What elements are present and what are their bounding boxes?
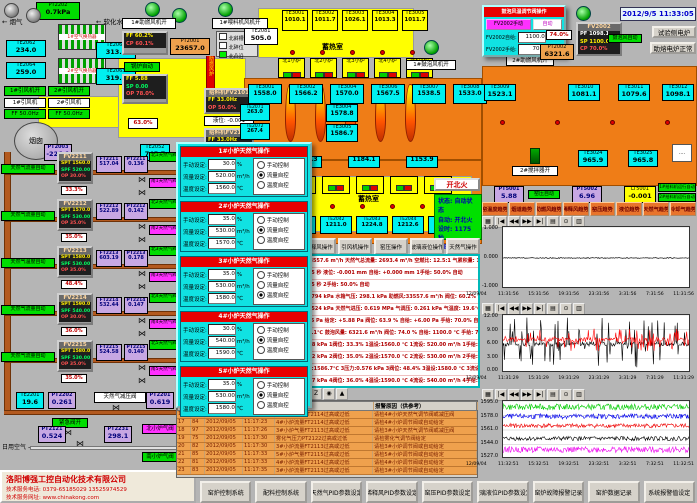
loop-auto-status: 天然气流量自动 [1, 164, 55, 174]
valve-icon: ⋈ [138, 377, 146, 385]
trend-button[interactable]: 窑温度趋势 [482, 202, 508, 216]
valve-dot [380, 50, 385, 55]
x-tick-label: 23:32:51 [589, 462, 610, 467]
mode-flow-radio[interactable]: 流量自控 [257, 391, 303, 399]
south-top-values: 1166.31184.11153.9 [290, 156, 438, 168]
y-tick-label: 1561.0 [460, 426, 498, 432]
bottom-nav-button[interactable]: 窑炉控制系统 [200, 481, 251, 503]
gas-supply-pipe [4, 410, 176, 415]
mode-flow-radio[interactable]: 流量自控 [257, 226, 303, 234]
panel-fields: 手动设定: 35.0 % 流量设定: 530.00 m³/h 温度设定: 158… [183, 378, 250, 415]
bubbler-auto-status: 鼓泡风自动 [608, 34, 642, 43]
mode-flow-radio[interactable]: 流量自控 [257, 336, 303, 344]
south-port-label: 南4小炉 [390, 176, 418, 194]
temp-setpoint-input[interactable]: 1560.0 [208, 183, 236, 194]
control-mode-group: 手动控制 流量自控 温度自控 [253, 323, 305, 360]
blower-1-status: 1#助燃风机开 [122, 18, 176, 29]
fan-icon [145, 2, 160, 17]
south-te-box: TE20421211.0 [320, 216, 352, 234]
north-port-air-valve: 北小炉气阀 [142, 424, 178, 434]
pt2201-box: PT22010.619 [146, 392, 174, 409]
valve-dot [665, 120, 670, 125]
crown-te-stack-2: TE30051586.7 [326, 124, 358, 142]
fv2002-sp-label: FV2002自给: [486, 34, 517, 41]
gas-furnace-panel: 2#小炉天然气操作 手动设定: 35.0 % 流量设定: 530.00 m³/h… [180, 201, 308, 252]
valve-dot [330, 204, 335, 209]
te2081-box: TE2081505.0 [244, 28, 278, 45]
regen-te-box: TE30051011.7 [402, 10, 428, 31]
alarm-row[interactable]: 19752012/09/05 11:17:30雾化气压力PT2122过高或过低请… [177, 435, 477, 443]
mode-manual-radio[interactable]: 手动控制 [257, 216, 303, 224]
bottom-nav-button[interactable]: 玻璃液位PID参数设定 [477, 481, 528, 503]
chimney-label: 烟囱 [29, 136, 43, 146]
trend-button[interactable]: 窑压趋势 [590, 202, 616, 216]
fan-icon [576, 6, 591, 21]
fan-icon [26, 8, 41, 23]
gas-operation-dialog: 1#小炉天然气操作 手动设定: 30.0 % 流量设定: 520.00 m³/h… [176, 142, 312, 408]
feeder-1-auto-status: 1#给料机运行自动 [658, 183, 696, 192]
manual-setpoint-input[interactable]: 30.0 [208, 324, 236, 335]
chart3-yaxis: 1595.01578.01561.01544.01527.0 [460, 399, 498, 459]
south-port-air-valve: 南小炉气阀 [142, 452, 178, 462]
regen-te-box: TE30031026.1 [342, 10, 368, 31]
loop-pressure-box: PT22140.147 [124, 297, 148, 314]
trend-button[interactable]: 烟道趋势 [509, 202, 535, 216]
wall-te-box: TE2072267.4 [240, 123, 270, 140]
chart2-plot [502, 314, 690, 372]
crown-te-stack-1: TE30041578.8 [326, 104, 358, 122]
chart2-yaxis: 12.009.006.003.000.00 [464, 313, 498, 373]
right-te-box-0: TE30091523.1 [484, 84, 516, 101]
x-tick-label: 11:31:29 [673, 376, 694, 381]
stirrer-icon [530, 148, 540, 164]
loop-north-valve: 北1天然气阀 [149, 152, 179, 162]
trend-button[interactable]: 液位趋势 [616, 202, 642, 216]
north-port-label: 北4小炉 [374, 58, 401, 78]
south-port-label: 南2小炉 [322, 176, 350, 194]
chart1-xdate: 12/09/04 [466, 292, 487, 297]
valve-icon: ⋈ [138, 283, 146, 291]
manual-setpoint-input[interactable]: 35.0 [208, 379, 236, 390]
valve-dot [290, 50, 295, 55]
id-fan-2-status: 2#引风机开 [48, 86, 90, 96]
test-furnace-button[interactable]: 试验侧电炉 [652, 26, 696, 38]
panel-title: 1#小炉天然气操作 [181, 147, 307, 157]
south-top-value: 1184.1 [348, 156, 380, 168]
loop-flow-box: FT2213603.19 [96, 250, 122, 267]
panel-title: 4#小炉天然气操作 [181, 312, 307, 322]
y-tick-label: 1.000 [464, 225, 498, 231]
valve-icon: ⋈ [138, 189, 146, 197]
loop-pressure-box: PT22150.140 [124, 344, 148, 361]
temp-setpoint-input[interactable]: 1570.0 [208, 238, 236, 249]
loop-auto-status: 天然气流量自动 [1, 352, 55, 362]
loop-north-valve: 北5天然气阀 [149, 340, 179, 350]
pt2202-box: PT22020.261 [48, 392, 76, 409]
loop-flow-box: FT2212522.89 [96, 203, 122, 220]
gas-loop: 天然气流量自动 FV2211 SPT 1560.0 SPF 520.00 OP … [0, 152, 180, 199]
chart1-xaxis: 11:31:5615:31:5619:31:5623:31:563:31:567… [498, 292, 694, 297]
x-tick-label: 3:32:51 [619, 462, 637, 467]
gas-loop: 天然气流量自动 FV2212 SPT 1570.0 SPF 530.00 OP … [0, 199, 180, 246]
valve-dot [390, 204, 395, 209]
regen-temp-row: TE30011010.1 TE30021011.7 TE30031026.1 T… [282, 10, 428, 31]
loop-pressure-box: PT22130.178 [124, 250, 148, 267]
melt-furnace-button[interactable]: 助熔电炉正常 [650, 42, 696, 54]
valve-dot [500, 120, 505, 125]
fan-icon [4, 3, 19, 18]
loop-north-valve: 北4天然气阀 [149, 293, 179, 303]
loop-pressure-box: PT22120.142 [124, 203, 148, 220]
temp-setpoint-input[interactable]: 1580.0 [208, 293, 236, 304]
panel-title: 3#小炉天然气操作 [181, 257, 307, 267]
crown-te-box: TE30011558.0 [248, 84, 282, 104]
gas-furnace-panel: 3#小炉天然气操作 手动设定: 35.0 % 流量设定: 530.00 m³/h… [180, 256, 308, 307]
loop-valve-position: 48.4% [61, 280, 87, 289]
panel-title: 5#小炉天然气操作 [181, 367, 307, 377]
bubbler-dialog-title: 鼓泡风温调节阀操作 [484, 7, 564, 17]
control-mode-group: 手动控制 流量自控 温度自控 [253, 268, 305, 305]
panel-fields: 手动设定: 30.0 % 流量设定: 520.00 m³/h 温度设定: 156… [183, 158, 250, 195]
trend-button[interactable]: 稀释风趋势 [563, 202, 589, 216]
right-te2-box-0: TE3024965.9 [578, 150, 608, 167]
south-port-label: 南3小炉 [356, 176, 384, 194]
fv2003-controller: FF 5.88 SP 0.00 OP 78.0% [122, 74, 168, 104]
regen-south-label: 蓄热室 [358, 194, 379, 204]
loop-south-valve: 南1天然气阀 [149, 178, 179, 188]
y-tick-label: 3.00 [464, 354, 498, 360]
loop-auto-status: 天然气流量自动 [1, 211, 55, 221]
y-tick-label: 12.00 [464, 313, 498, 319]
fan-icon [218, 2, 233, 17]
mode-flow-radio[interactable]: 流量自控 [257, 171, 303, 179]
crown-te-box: TE30041570.0 [330, 84, 364, 104]
loop-valve-position: 35.0% [61, 233, 87, 242]
bottom-nav-button[interactable]: 天然气PID参数设定 [311, 481, 362, 503]
boiler-auto-status: 锅炉自动 [124, 62, 160, 72]
panel-fields: 手动设定: 30.0 % 流量设定: 540.00 m³/h 温度设定: 159… [183, 323, 250, 360]
temp-setpoint-input[interactable]: 1580.0 [208, 403, 236, 414]
x-tick-label: 19:32:51 [558, 462, 579, 467]
alarm-row[interactable]: 23832012/09/05 11:17:353#小炉流量FT2113过高或过低… [177, 467, 477, 475]
te2201-box: TE220119.6 [16, 392, 44, 409]
trend-button[interactable]: 天然气趋势 [643, 202, 669, 216]
y-tick-label: 6.00 [464, 340, 498, 346]
x-tick-label: 19:31:29 [558, 376, 579, 381]
gas-loop-stack: 天然气流量自动 FV2211 SPT 1560.0 SPF 520.00 OP … [0, 152, 180, 392]
valve-icon: ⋈ [138, 223, 146, 231]
trend-button[interactable]: 冷却气趋势 [670, 202, 696, 216]
loop-north-valve: 北2天然气阀 [149, 199, 179, 209]
loop-auto-status: 天然气温度自动 [1, 258, 55, 268]
scada-screen: 助燃风炉 PT2202 0.7kPa ← 烟气 ← 软化水 1#空气换热器 2#… [0, 0, 697, 503]
alarm-toolbar-icon[interactable]: ◉ [323, 388, 335, 400]
control-mode-group: 手动控制 流量自控 温度自控 [253, 213, 305, 250]
mode-manual-radio[interactable]: 手动控制 [257, 271, 303, 279]
y-tick-label: -1.000 [464, 283, 498, 289]
legend-item: 北凸沿 [219, 51, 255, 60]
valve-icon: ⋈ [76, 440, 84, 448]
manual-setpoint-input[interactable]: 35.0 [208, 214, 236, 225]
valve-icon: ⋈ [138, 176, 146, 184]
y-tick-label: 1578.0 [460, 413, 498, 419]
fire-status-row: 状态: 自动状态 [438, 197, 478, 216]
fire-reversal-button[interactable]: 开北火 [434, 178, 480, 191]
gas-loop: 天然气流量自动 FV2214 SPT 1590.0 SPF 540.00 OP … [0, 293, 180, 340]
flow-setpoint-input[interactable]: 520.00 [208, 171, 236, 182]
y-tick-label: 1544.0 [460, 440, 498, 446]
x-tick-label: 7:31:29 [646, 376, 664, 381]
panel-fields: 手动设定: 35.0 % 流量设定: 530.00 m³/h 温度设定: 157… [183, 213, 250, 250]
valve-icon: ⋈ [138, 330, 146, 338]
alarm-row[interactable]: 21852012/09/05 11:17:335#小炉气量FT2115过高或过低… [177, 451, 477, 459]
ops-button[interactable]: 窑压操作 [374, 238, 408, 255]
gas-dialog-panels: 1#小炉天然气操作 手动设定: 30.0 % 流量设定: 520.00 m³/h… [178, 144, 310, 419]
valve-dot [360, 204, 365, 209]
manual-setpoint-input[interactable]: 35.0 [208, 269, 236, 280]
chart3-plot [502, 400, 690, 458]
duct-label: 助燃风炉 [208, 56, 215, 76]
trend-button[interactable]: 助燃风趋势 [536, 202, 562, 216]
spare-indicator-box: ···· [672, 144, 692, 162]
loop-controller[interactable]: FV2213 SPT 1580.0 SPF 530.00 OP 35.0% [57, 246, 93, 278]
bottom-button-bar: 窑炉控制系统配料控制系统天然气PID参数设定稀释风PID参数设定窑压PID参数设… [200, 481, 695, 503]
mode-flow-radio[interactable]: 流量自控 [257, 281, 303, 289]
alarm-toolbar-icon[interactable]: ▲ [336, 388, 348, 400]
pt2202-top-box: PT2202 0.7kPa [36, 2, 80, 20]
alarm-row[interactable]: 17842012/09/05 11:17:234#小炉流量FT2114过高或过低… [177, 419, 477, 427]
te2062-box: TE2062234.0 [6, 40, 46, 57]
valve-dot [350, 50, 355, 55]
right-te-box-3: TE30121098.1 [662, 84, 694, 101]
gas-furnace-panel: 4#小炉天然气操作 手动设定: 30.0 % 流量设定: 540.00 m³/h… [180, 311, 308, 362]
valve-icon: ⋈ [138, 317, 146, 325]
south-top-value: 1153.9 [406, 156, 438, 168]
x-tick-label: 3:31:56 [619, 292, 637, 297]
x-tick-label: 15:31:56 [528, 292, 549, 297]
id-fan-2-name: 2#引风机 [48, 98, 90, 108]
x-tick-label: 11:31:56 [498, 292, 519, 297]
loop-controller[interactable]: FV2212 SPT 1570.0 SPF 530.00 OP 35.0% [57, 199, 93, 231]
fv2002-sp-input[interactable]: 1100.0 [518, 32, 546, 43]
id-fan-2-freq: FF 50.0Hz [48, 109, 90, 119]
y-tick-label: 0.000 [464, 254, 498, 260]
plant-air-pipe [30, 446, 178, 450]
mode-temp-radio[interactable]: 温度自控 [257, 236, 303, 244]
loop-controller[interactable]: FV2214 SPT 1590.0 SPF 540.00 OP 30.0% [57, 293, 93, 325]
ops-button[interactable]: 玻璃液位操作 [410, 238, 444, 255]
x-tick-label: 15:31:29 [528, 376, 549, 381]
x-tick-label: 3:31:29 [619, 376, 637, 381]
fv2002-manual-button[interactable]: FV2002手动 [486, 19, 531, 30]
id-fan-1-freq: FF 50.0Hz [4, 109, 46, 119]
gas-furnace-panel: 5#小炉天然气操作 手动设定: 35.0 % 流量设定: 530.00 m³/h… [180, 366, 308, 417]
loop-south-valve: 南4天然气阀 [149, 319, 179, 329]
alarm-rows: 16902012/09/05 11:17:214#小炉气量FT2114过高或过低… [177, 411, 477, 475]
bottom-nav-button[interactable]: 稀释风PID参数设定 [366, 481, 417, 503]
loop-south-valve: 南5天然气阀 [149, 366, 179, 376]
y-tick-label: 0.00 [464, 367, 498, 373]
gas-loop: 天然气流量自动 FV2215 SPT 1580.0 SPF 530.00 OP … [0, 340, 180, 387]
north-port-label: 北2小炉 [310, 58, 337, 78]
fv2001-controller: FF 60.2% CP 60.1% [122, 31, 168, 55]
id-fan-1-status: 1#引风机开 [4, 86, 46, 96]
regen-te-box: TE30041013.3 [372, 10, 398, 31]
feeder-2-auto-status: 2#给料机运行自动 [658, 193, 696, 202]
mode-manual-radio[interactable]: 手动控制 [257, 326, 303, 334]
right-te2-box-1: TE3025965.8 [628, 150, 658, 167]
crown-te-box: TE30021566.2 [289, 84, 323, 104]
x-tick-label: 11:32:51 [673, 462, 694, 467]
x-tick-label: 23:31:29 [589, 376, 610, 381]
pt2121-box: PT21210.524 [38, 426, 66, 443]
loop-south-valve: 南2天然气阀 [149, 225, 179, 235]
chart1-plot [502, 226, 690, 288]
x-tick-label: 19:31:56 [558, 292, 579, 297]
chart2-xaxis: 11:31:2915:31:2919:31:2923:31:293:31:297… [498, 376, 694, 381]
south-te-box: TE20441212.6 [392, 216, 424, 234]
bottom-nav-button[interactable]: 窑压PID参数设定 [422, 481, 473, 503]
plant-air-label: 日用空气 → [2, 442, 33, 451]
mode-temp-radio[interactable]: 温度自控 [257, 401, 303, 409]
mode-temp-radio[interactable]: 温度自控 [257, 181, 303, 189]
valve-dot [410, 50, 415, 55]
fv2002-position: 74.0% [546, 30, 572, 40]
valve-icon: ⋈ [112, 404, 120, 412]
mode-manual-radio[interactable]: 手动控制 [257, 161, 303, 169]
x-tick-label: 7:32:51 [646, 462, 664, 467]
mode-temp-radio[interactable]: 温度自控 [257, 346, 303, 354]
right-te-box-1: TE30101081.1 [568, 84, 600, 101]
x-tick-label: 11:31:56 [673, 292, 694, 297]
regen-north-label: 蓄热室 [322, 42, 343, 52]
valve-dot [420, 204, 425, 209]
gas-furnace-panel: 1#小炉天然气操作 手动设定: 30.0 % 流量设定: 520.00 m³/h… [180, 146, 308, 197]
loop-flow-box: FT2214532.44 [96, 297, 122, 314]
loop-valve-position: 35.0% [61, 374, 87, 383]
fan-icon [424, 40, 439, 55]
pt5002-box: PT50026.96 [572, 186, 602, 203]
alarm-row[interactable]: 20822012/09/05 11:17:303#小炉流量FT2113过高或过低… [177, 443, 477, 451]
exchanger-1-label: 1#空气换热器 [59, 34, 105, 40]
trend-button-row: 窑温度趋势烟道趋势助燃风趋势稀释风趋势窑压趋势液位趋势天然气趋势冷却气趋势 [482, 202, 696, 216]
bottom-nav-button[interactable]: 窑炉故障报警记录 [533, 481, 584, 503]
pressure-auto-status: 窑压自动 [528, 190, 560, 199]
valve-icon: ⋈ [138, 270, 146, 278]
te2064-box: TE2064259.0 [6, 62, 46, 79]
gas-loop: 天然气温度自动 FV2213 SPT 1580.0 SPF 530.00 OP … [0, 246, 180, 293]
y-tick-label: 1595.0 [460, 399, 498, 405]
panel-title: 2#小炉天然气操作 [181, 202, 307, 212]
mode-temp-radio[interactable]: 温度自控 [257, 291, 303, 299]
north-port-label: 北1小炉 [278, 58, 305, 78]
company-tel: 技术服务电话: 0379-65185029 13525974529 [6, 485, 190, 493]
company-name: 洛阳博强工控自动化技术有限公司 [6, 474, 190, 485]
bubbler-fan-status: 1#鼓泡风机开 [406, 60, 456, 70]
loop-controller[interactable]: FV2215 SPT 1580.0 SPF 530.00 OP 35.0% [57, 340, 93, 372]
bottom-nav-button[interactable]: 窑炉数据记录 [588, 481, 639, 503]
valve-icon: ⋈ [138, 236, 146, 244]
pt2002-box: PT20026321.6 [540, 44, 574, 60]
loop-auto-status: 天然气流量自动 [1, 305, 55, 315]
valve-dot [320, 50, 325, 55]
loop-valve-position: 36.0% [61, 327, 87, 336]
fv2002-auto-button[interactable]: 自动 [533, 19, 562, 30]
bottom-nav-button[interactable]: 配料控制系统 [255, 481, 306, 503]
chart2-xdate: 12/09/04 [466, 376, 487, 381]
wall-te-box: TE2071263.0 [240, 104, 270, 121]
x-tick-label: 23:31:56 [589, 292, 610, 297]
x-tick-label: 7:31:56 [646, 292, 664, 297]
pressure-reducer-label: 天然气减压阀 [94, 392, 146, 403]
loop-flow-box: FT2211517.04 [96, 156, 122, 173]
south-port-row: 南1小炉 南2小炉 南3小炉 南4小炉 南5小炉 [288, 176, 452, 194]
flow-setpoint-input[interactable]: 530.00 [208, 281, 236, 292]
pt2231-box: PT2231298.1 [104, 426, 132, 443]
control-mode-group: 手动控制 流量自控 温度自控 [253, 158, 305, 195]
loop-valve-position: 33.3% [61, 186, 87, 195]
loop-north-valve: 北3天然气阀 [149, 246, 179, 256]
x-tick-label: 11:31:29 [498, 376, 519, 381]
damper-position: 63.0% [128, 118, 158, 129]
chart3-xaxis: 11:32:5115:32:5119:32:5123:32:513:32:517… [498, 462, 694, 467]
company-info: 洛阳博强工控自动化技术有限公司 技术服务电话: 0379-65185029 13… [0, 470, 196, 503]
y-tick-label: 9.00 [464, 327, 498, 333]
flow-setpoint-input[interactable]: 540.00 [208, 336, 236, 347]
valve-icon: ⋈ [138, 364, 146, 372]
company-web: 技术服务网址: www.chinakong.com [6, 493, 190, 501]
ops-button[interactable]: 引风机操作 [338, 238, 372, 255]
x-tick-label: 15:32:51 [528, 462, 549, 467]
flow-setpoint-input[interactable]: 530.00 [208, 226, 236, 237]
stirrer-status: 2#搅拌器开 [512, 166, 558, 176]
datetime-display: 2012/9/5 11:33:05 [620, 7, 696, 21]
crown-te-box: TE30071538.5 [412, 84, 446, 104]
loop-south-valve: 南3天然气阀 [149, 272, 179, 282]
crown-temp-row: TE30011558.0 TE30021566.2 TE30041570.0 T… [248, 84, 487, 104]
valve-dot [555, 120, 560, 125]
loop-flow-box: FT2215524.58 [96, 344, 122, 361]
bottom-nav-button[interactable]: 系统报警值设定 [644, 481, 695, 503]
regen-te-box: TE30021011.7 [312, 10, 338, 31]
alarm-row[interactable]: 18972012/09/05 11:17:263#小炉气量FT2113过高或过低… [177, 427, 477, 435]
right-te-box-2: TE30111079.6 [618, 84, 650, 101]
control-mode-group: 手动控制 流量自控 温度自控 [253, 378, 305, 415]
alarm-row[interactable]: 22812012/09/05 11:17:334#小炉流量FT2114过高或过低… [177, 459, 477, 467]
north-port-label: 北3小炉 [342, 58, 369, 78]
temp-setpoint-input[interactable]: 1590.0 [208, 348, 236, 359]
manual-setpoint-input[interactable]: 30.0 [208, 159, 236, 170]
chart3-xdate: 12/09/04 [466, 462, 487, 467]
x-tick-label: 11:32:51 [498, 462, 519, 467]
id-fan-1-name: 1#引风机 [4, 98, 46, 108]
chart1-yaxis: 1.0000.000-1.000 [464, 225, 498, 289]
fv2002-manual-label: FV2002手给: [486, 46, 517, 53]
loop-controller[interactable]: FV2211 SPT 1560.0 SPF 520.00 OP 30.0% [57, 152, 93, 184]
mode-manual-radio[interactable]: 手动控制 [257, 381, 303, 389]
crown-te-box: TE30061567.5 [371, 84, 405, 104]
pt5001-box: PT50015.88 [494, 186, 524, 203]
lt5001-box: LT5001-0.001 [624, 186, 656, 203]
y-tick-label: 1527.0 [460, 453, 498, 459]
flow-setpoint-input[interactable]: 530.00 [208, 391, 236, 402]
regen-te-box: TE30011010.1 [282, 10, 308, 31]
valve-dot [610, 120, 615, 125]
crown-te-box: TE30081533.0 [453, 84, 487, 104]
fire-status-row: 自动: 开北火 [438, 216, 478, 225]
pt2001-box: PT200123657.0 [170, 38, 210, 55]
south-te-box: TE20431224.8 [356, 216, 388, 234]
